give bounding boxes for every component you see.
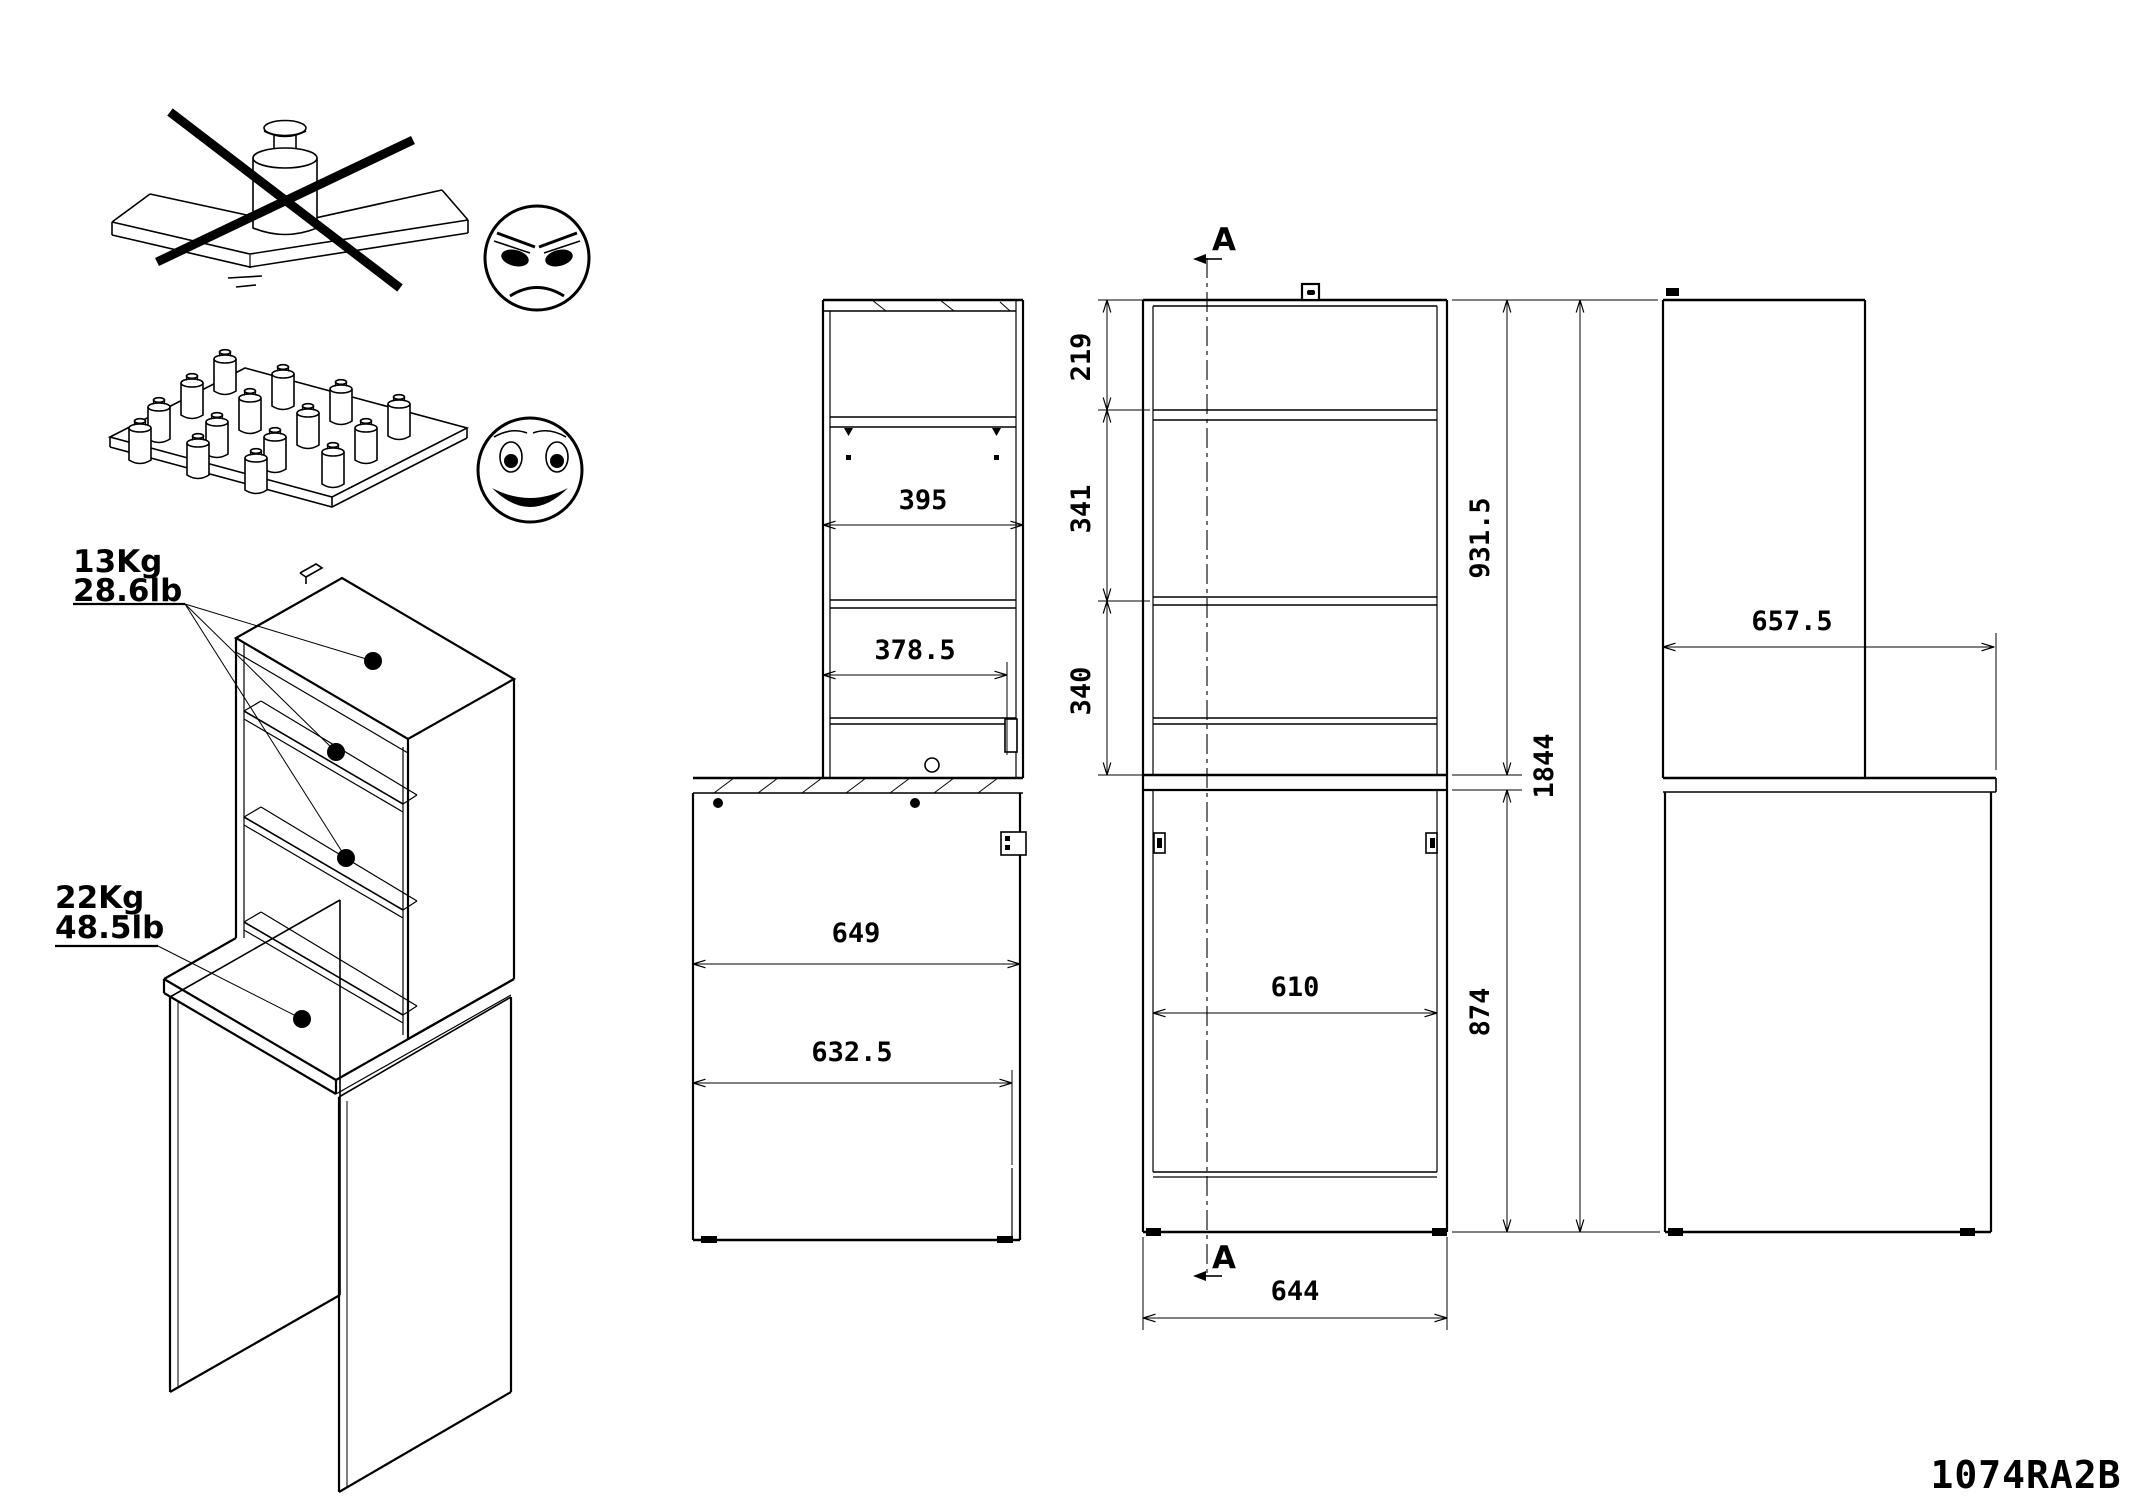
front-view: A A 219 341 340 931.5 874 1844 610 644 bbox=[1066, 222, 1660, 1330]
distributed-load-icon bbox=[110, 350, 467, 507]
dim-desk-height: 874 bbox=[1465, 988, 1496, 1037]
right-view: 657.5 bbox=[1663, 288, 1996, 1236]
wall-bracket-side-icon bbox=[1666, 288, 1679, 296]
side-clip-left-icon bbox=[1154, 833, 1165, 853]
dim-shelf-depth: 378.5 bbox=[874, 635, 955, 666]
side-clip-right-icon bbox=[1426, 833, 1437, 853]
wall-bracket-icon bbox=[300, 564, 322, 584]
dim-desk-inner-depth: 632.5 bbox=[811, 1037, 892, 1068]
dim-top-gap: 219 bbox=[1066, 333, 1097, 382]
dim-desktop-depth: 657.5 bbox=[1751, 606, 1832, 637]
isometric-view: 13Kg 28.6lb 22Kg 48.5lb bbox=[55, 544, 514, 1492]
dim-shelf-gap-2: 340 bbox=[1066, 667, 1097, 716]
shelf-load-lb-label: 28.6lb bbox=[73, 573, 182, 609]
dim-shelf-gap-1: 341 bbox=[1066, 485, 1097, 534]
dim-desk-depth: 649 bbox=[832, 918, 881, 949]
drawing-sheet: 13Kg 28.6lb 22Kg 48.5lb bbox=[0, 0, 2134, 1509]
desk-load-lb-label: 48.5lb bbox=[55, 910, 164, 946]
dim-hutch-depth: 395 bbox=[899, 485, 948, 516]
section-label-bottom: A bbox=[1212, 1240, 1236, 1276]
dim-outer-width: 644 bbox=[1271, 1276, 1320, 1307]
part-number: 1074RA2B bbox=[1930, 1453, 2121, 1497]
dim-total-height: 1844 bbox=[1529, 733, 1560, 798]
wall-bracket-front-icon bbox=[1302, 284, 1319, 300]
overload-warning-icon bbox=[112, 112, 468, 288]
dim-inner-width: 610 bbox=[1271, 972, 1320, 1003]
section-label-top: A bbox=[1212, 222, 1236, 258]
technical-drawing: 13Kg 28.6lb 22Kg 48.5lb bbox=[0, 0, 2134, 1509]
warning-panel bbox=[110, 112, 589, 522]
angry-face-icon bbox=[485, 206, 589, 310]
side-view: 395 378.5 649 632.5 bbox=[693, 300, 1026, 1243]
happy-face-icon bbox=[478, 418, 582, 522]
dim-hutch-height: 931.5 bbox=[1465, 497, 1496, 578]
